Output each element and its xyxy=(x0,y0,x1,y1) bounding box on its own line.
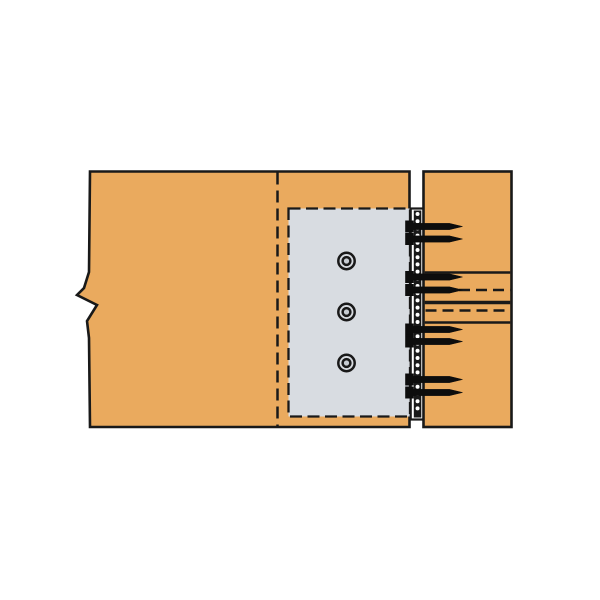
flange-dot xyxy=(416,306,420,310)
right-member xyxy=(424,172,512,428)
diagram-canvas xyxy=(0,0,600,600)
flange-dot xyxy=(416,255,420,259)
flange-dot xyxy=(416,406,420,410)
flange-dot xyxy=(416,298,420,302)
flange-dot xyxy=(416,356,420,360)
flange-dot xyxy=(416,334,420,338)
flange-dot xyxy=(416,363,420,367)
flange-dot xyxy=(416,219,420,223)
flange-dot xyxy=(416,320,420,324)
flange-dot xyxy=(416,313,420,317)
flange-dot xyxy=(416,385,420,389)
bolt-inner-ring xyxy=(343,257,351,265)
flange-dot xyxy=(416,262,420,266)
flange-dot xyxy=(416,270,420,274)
flange-dot xyxy=(416,399,420,403)
bolt-inner-ring xyxy=(343,359,351,367)
flange-dot xyxy=(416,349,420,353)
flange-dot xyxy=(416,248,420,252)
connection-detail-drawing xyxy=(0,0,600,600)
bolt-inner-ring xyxy=(343,308,351,316)
flange-dot xyxy=(416,212,420,216)
flange-dot xyxy=(416,370,420,374)
